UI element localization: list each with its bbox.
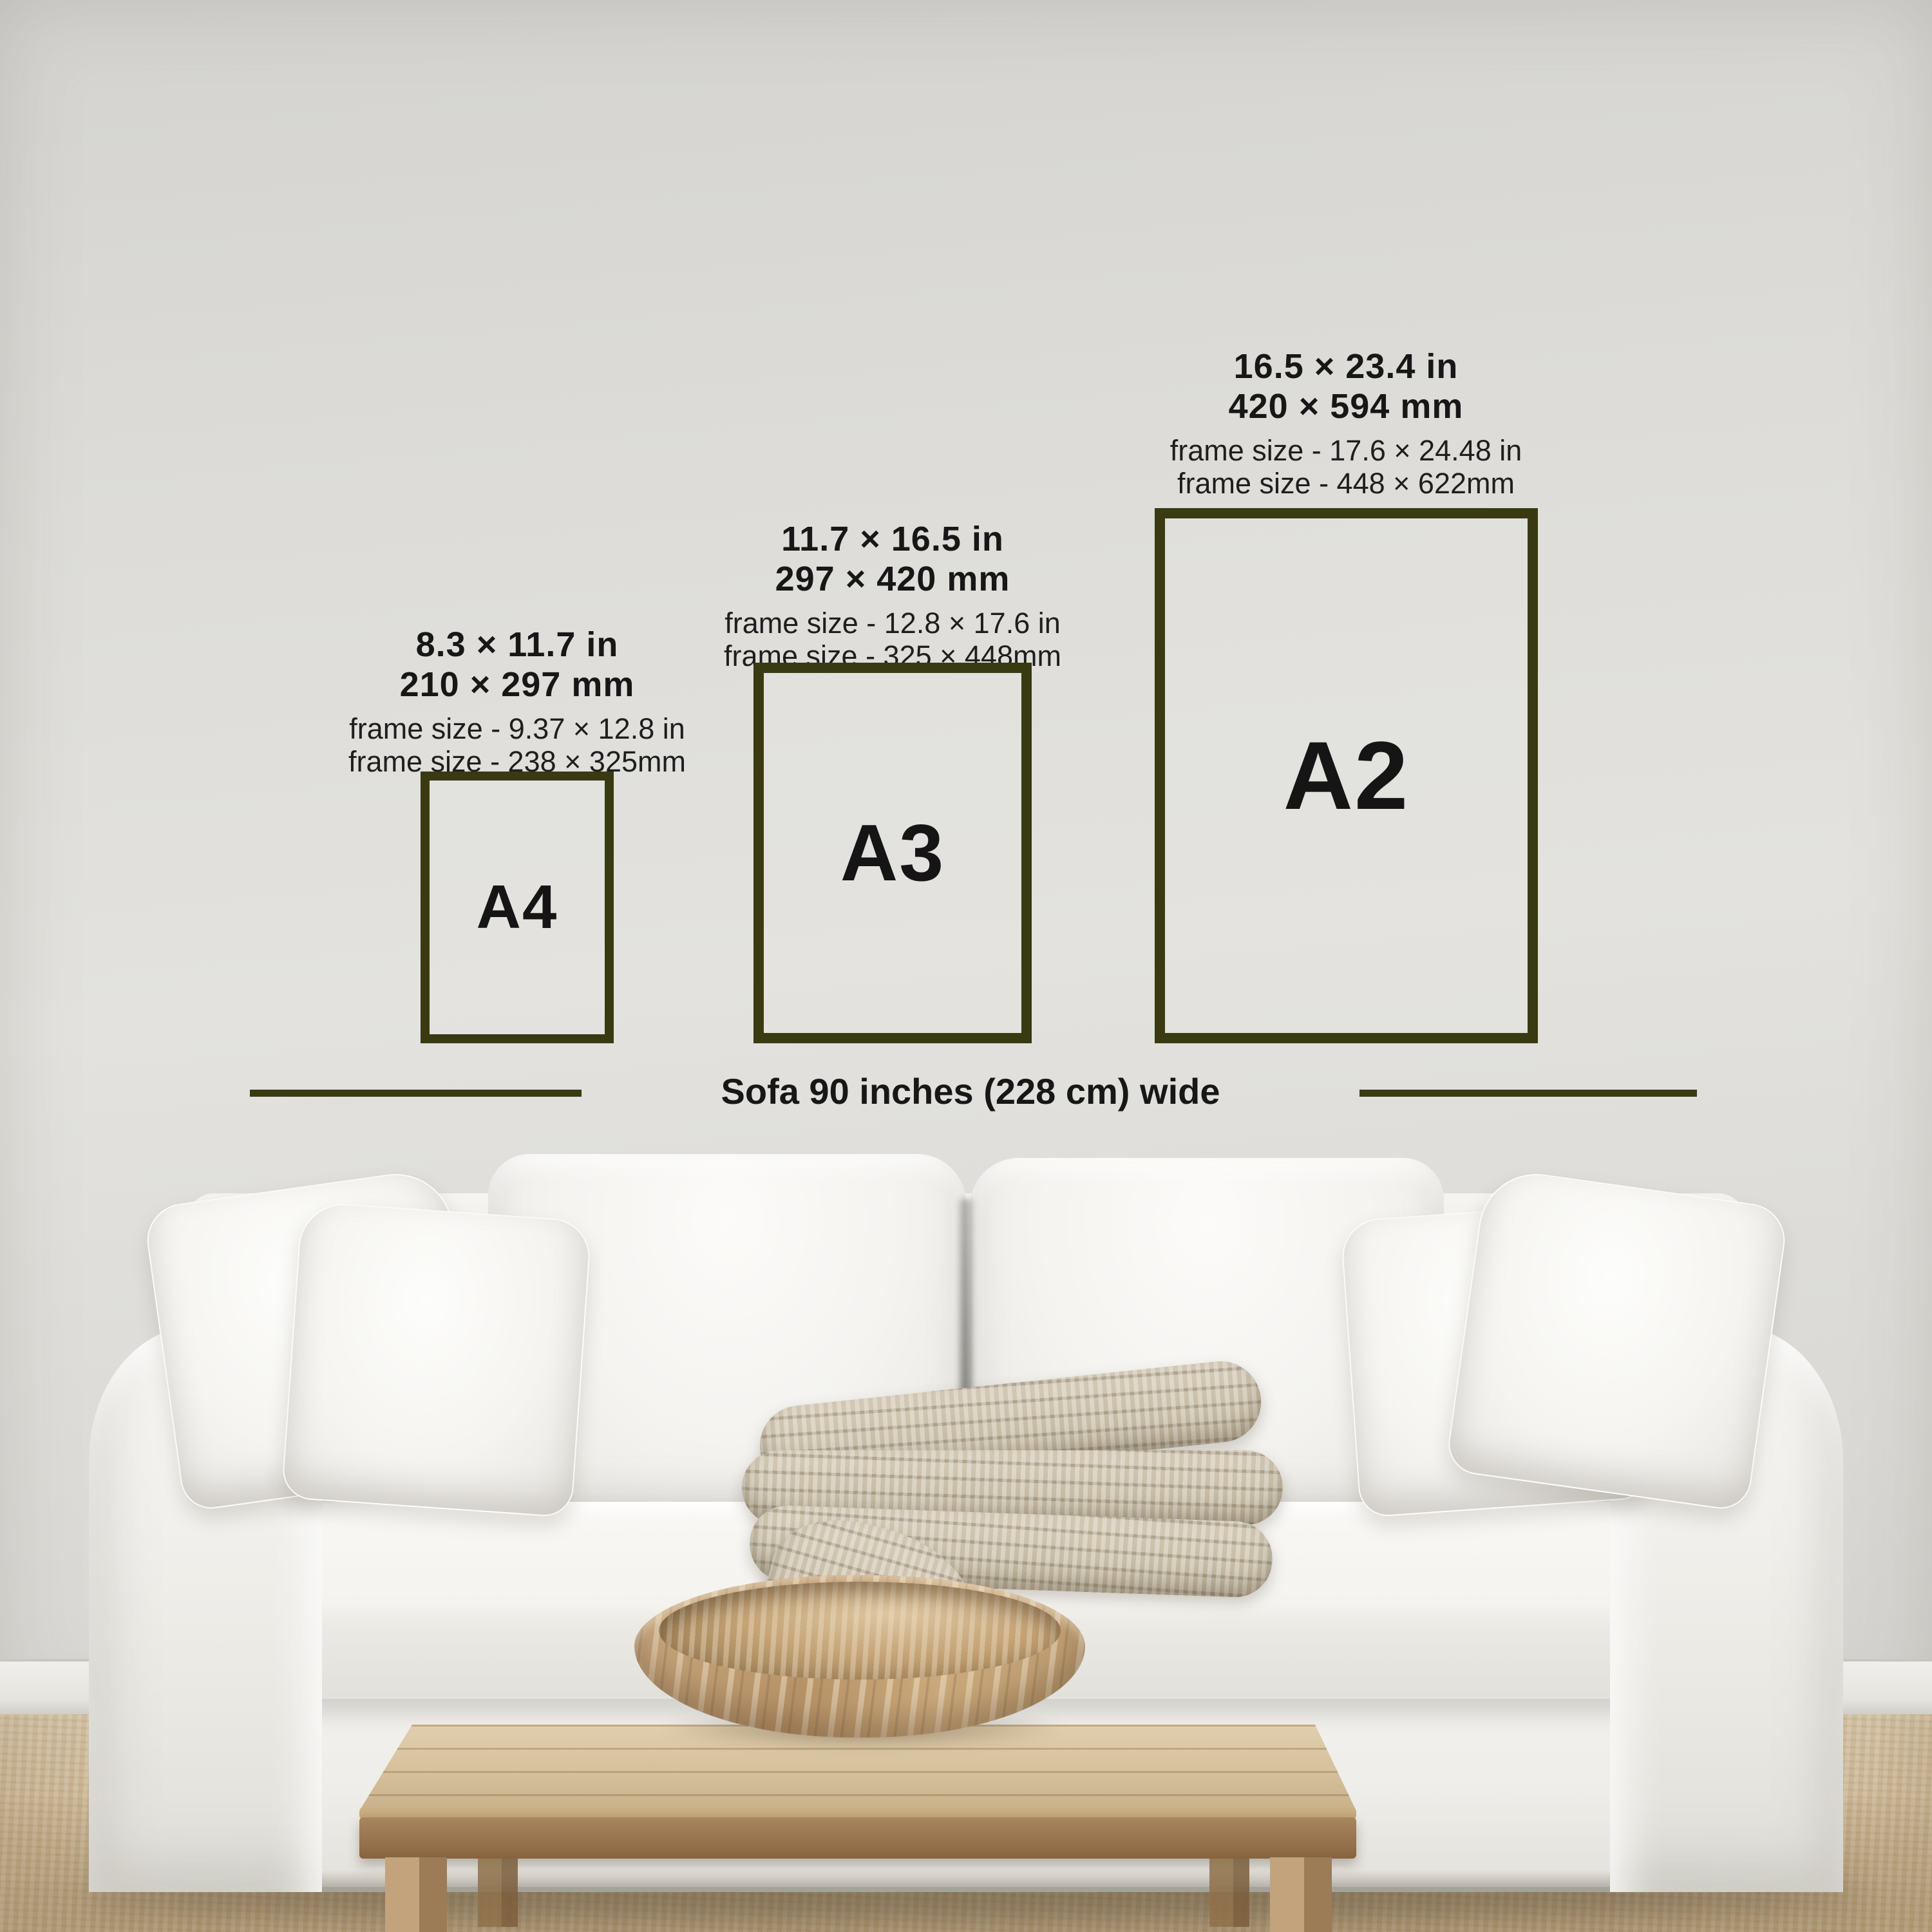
a2-dimensions-mm: 420 × 594 mm	[1024, 386, 1668, 426]
a2-dimensions-in: 16.5 × 23.4 in	[1024, 346, 1668, 386]
sofa-width-rule-left	[250, 1090, 582, 1097]
a2-frame: A2	[1155, 508, 1538, 1043]
a4-frame: A4	[421, 772, 614, 1043]
a3-label: A3	[840, 808, 945, 899]
sofa-width-caption: Sofa 90 inches (228 cm) wide	[721, 1070, 1220, 1112]
size-guide-mockup: 8.3 × 11.7 in 210 × 297 mm frame size - …	[0, 0, 1932, 1932]
a3-frame-size-in: frame size - 12.8 × 17.6 in	[571, 607, 1215, 639]
a2-caption: 16.5 × 23.4 in 420 × 594 mm frame size -…	[1024, 346, 1668, 500]
a3-frame: A3	[753, 663, 1032, 1043]
sofa-width-rule-right	[1359, 1090, 1697, 1097]
a2-frame-size-mm: frame size - 448 × 622mm	[1024, 467, 1668, 500]
a2-frame-size-in: frame size - 17.6 × 24.48 in	[1024, 434, 1668, 467]
a4-label: A4	[477, 872, 558, 943]
a3-caption: 11.7 × 16.5 in 297 × 420 mm frame size -…	[571, 519, 1215, 672]
a2-label: A2	[1283, 720, 1410, 831]
a3-dimensions-in: 11.7 × 16.5 in	[571, 519, 1215, 559]
size-guide-overlay: 8.3 × 11.7 in 210 × 297 mm frame size - …	[0, 0, 1932, 1932]
a4-frame-size-in: frame size - 9.37 × 12.8 in	[195, 712, 839, 745]
a3-dimensions-mm: 297 × 420 mm	[571, 559, 1215, 599]
